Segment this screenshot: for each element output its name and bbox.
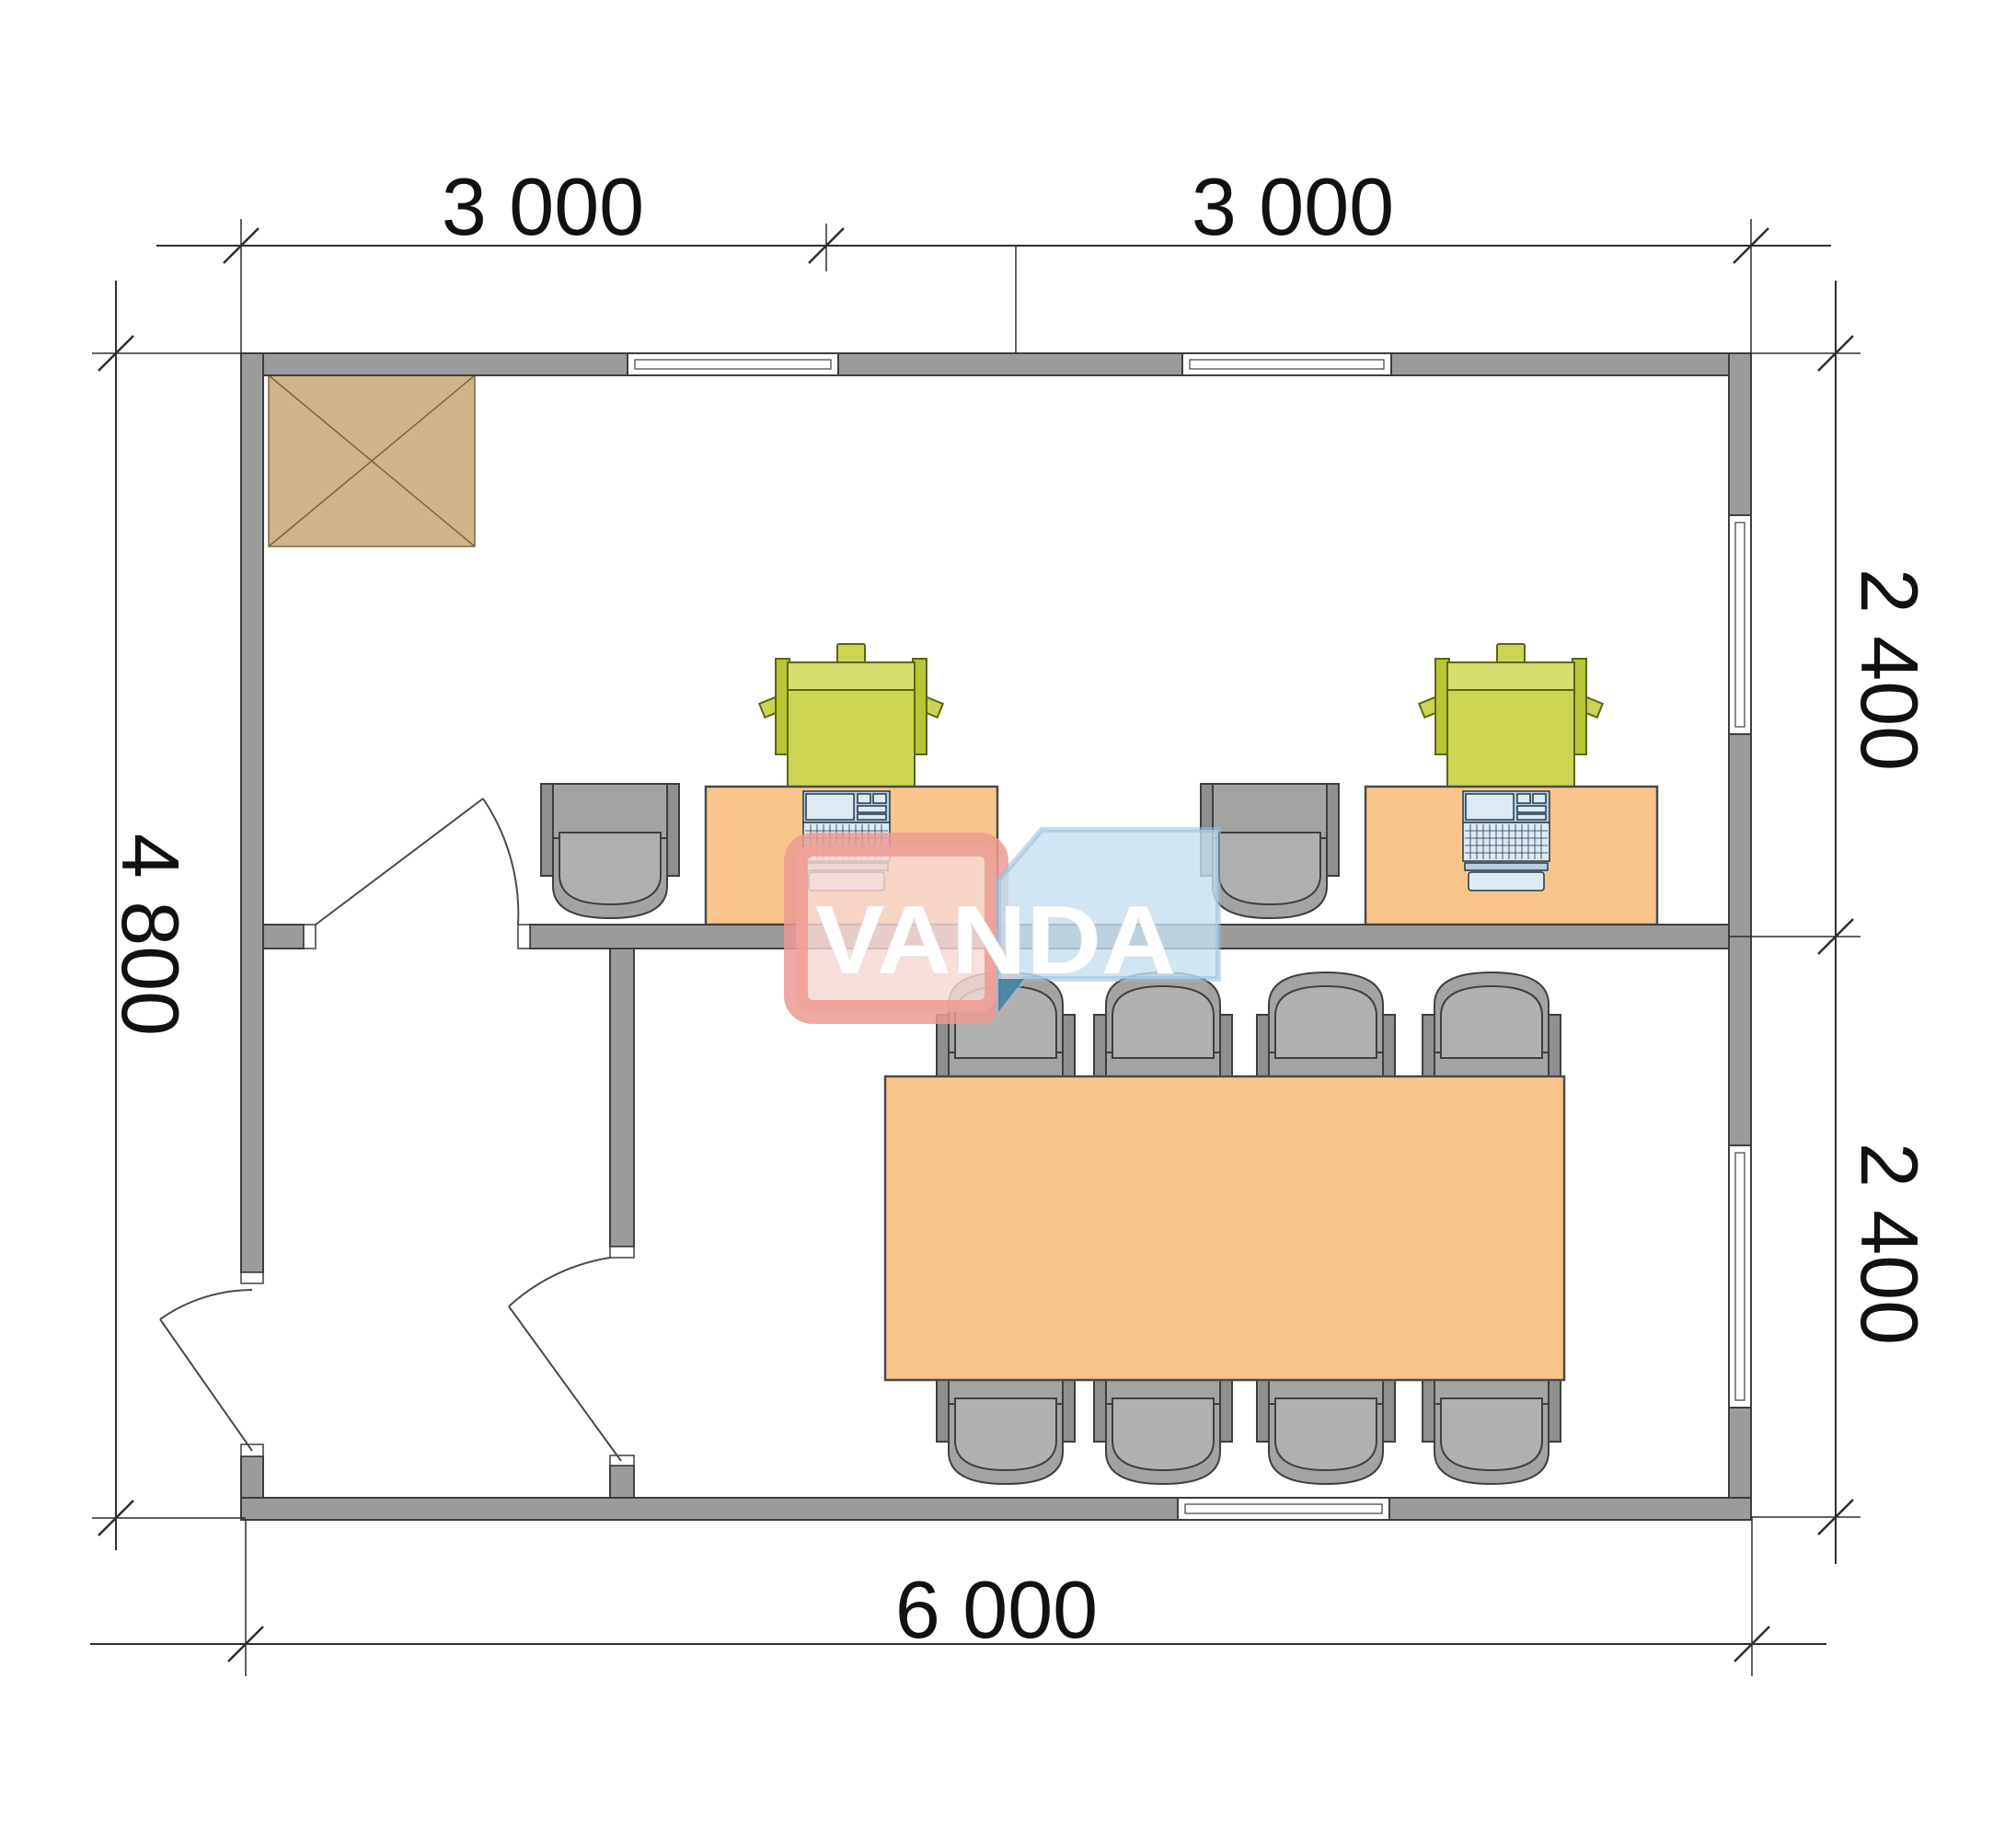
wall-top-3: [1391, 353, 1751, 375]
wall-top-2: [838, 353, 1182, 375]
wall-bottom-1: [241, 1498, 1178, 1520]
wall-right-2: [1729, 734, 1751, 1145]
dim-label-bottom: 6 000: [895, 1564, 1098, 1655]
partition-vertical: [610, 949, 634, 1247]
office-chair-1: [541, 784, 679, 918]
meeting-door-jamb-top: [610, 1247, 634, 1258]
floor-plan-canvas: VANDA 3 000 3 000 4 800 2 400 2 400 6 00…: [0, 0, 2016, 1840]
entrance-door-swing: [160, 1290, 252, 1451]
wall-left-stub: [241, 1456, 263, 1498]
window-right-upper-sash: [1735, 523, 1745, 727]
window-top-right-sash: [1190, 360, 1384, 369]
door-swings: [160, 799, 621, 1461]
wall-bottom-2: [1389, 1498, 1751, 1520]
ventilation-shaft: [269, 375, 475, 546]
window-top-left-sash: [635, 360, 831, 369]
office-door-jamb-right: [518, 925, 530, 949]
dim-label-left: 4 800: [105, 834, 196, 1036]
laptop-icon-2: [1463, 791, 1549, 891]
furniture: [541, 644, 1657, 1484]
dim-label-top-left: 3 000: [442, 161, 644, 252]
dim-label-right-upper: 2 400: [1844, 569, 1935, 771]
printer-icon-2: [1419, 644, 1603, 789]
wall-top-1: [241, 353, 628, 375]
office-door-jamb-left: [304, 925, 316, 949]
meeting-table: [885, 1076, 1564, 1380]
window-right-lower-sash: [1735, 1153, 1745, 1400]
office-door-swing: [316, 799, 518, 925]
office-chair-2: [1201, 784, 1339, 918]
floor-plan-page: VANDA 3 000 3 000 4 800 2 400 2 400 6 00…: [0, 0, 2016, 1840]
entrance-door-jamb-top: [241, 1272, 263, 1283]
meeting-door-swing: [509, 1258, 621, 1461]
meeting-door-jamb-bottom: [610, 1455, 634, 1466]
wall-right-1: [1729, 353, 1751, 515]
watermark: VANDA: [796, 830, 1218, 1012]
dim-label-top-right: 3 000: [1192, 161, 1394, 252]
watermark-text: VANDA: [815, 886, 1176, 995]
window-bottom-sash: [1185, 1504, 1382, 1513]
door-jambs: [241, 925, 634, 1466]
partition-vertical-stub: [610, 1466, 634, 1498]
wall-left-upper: [241, 353, 263, 1272]
partition-horizontal-stub: [263, 925, 304, 949]
printer-icon-1: [759, 644, 943, 789]
dim-label-right-lower: 2 400: [1844, 1143, 1935, 1345]
